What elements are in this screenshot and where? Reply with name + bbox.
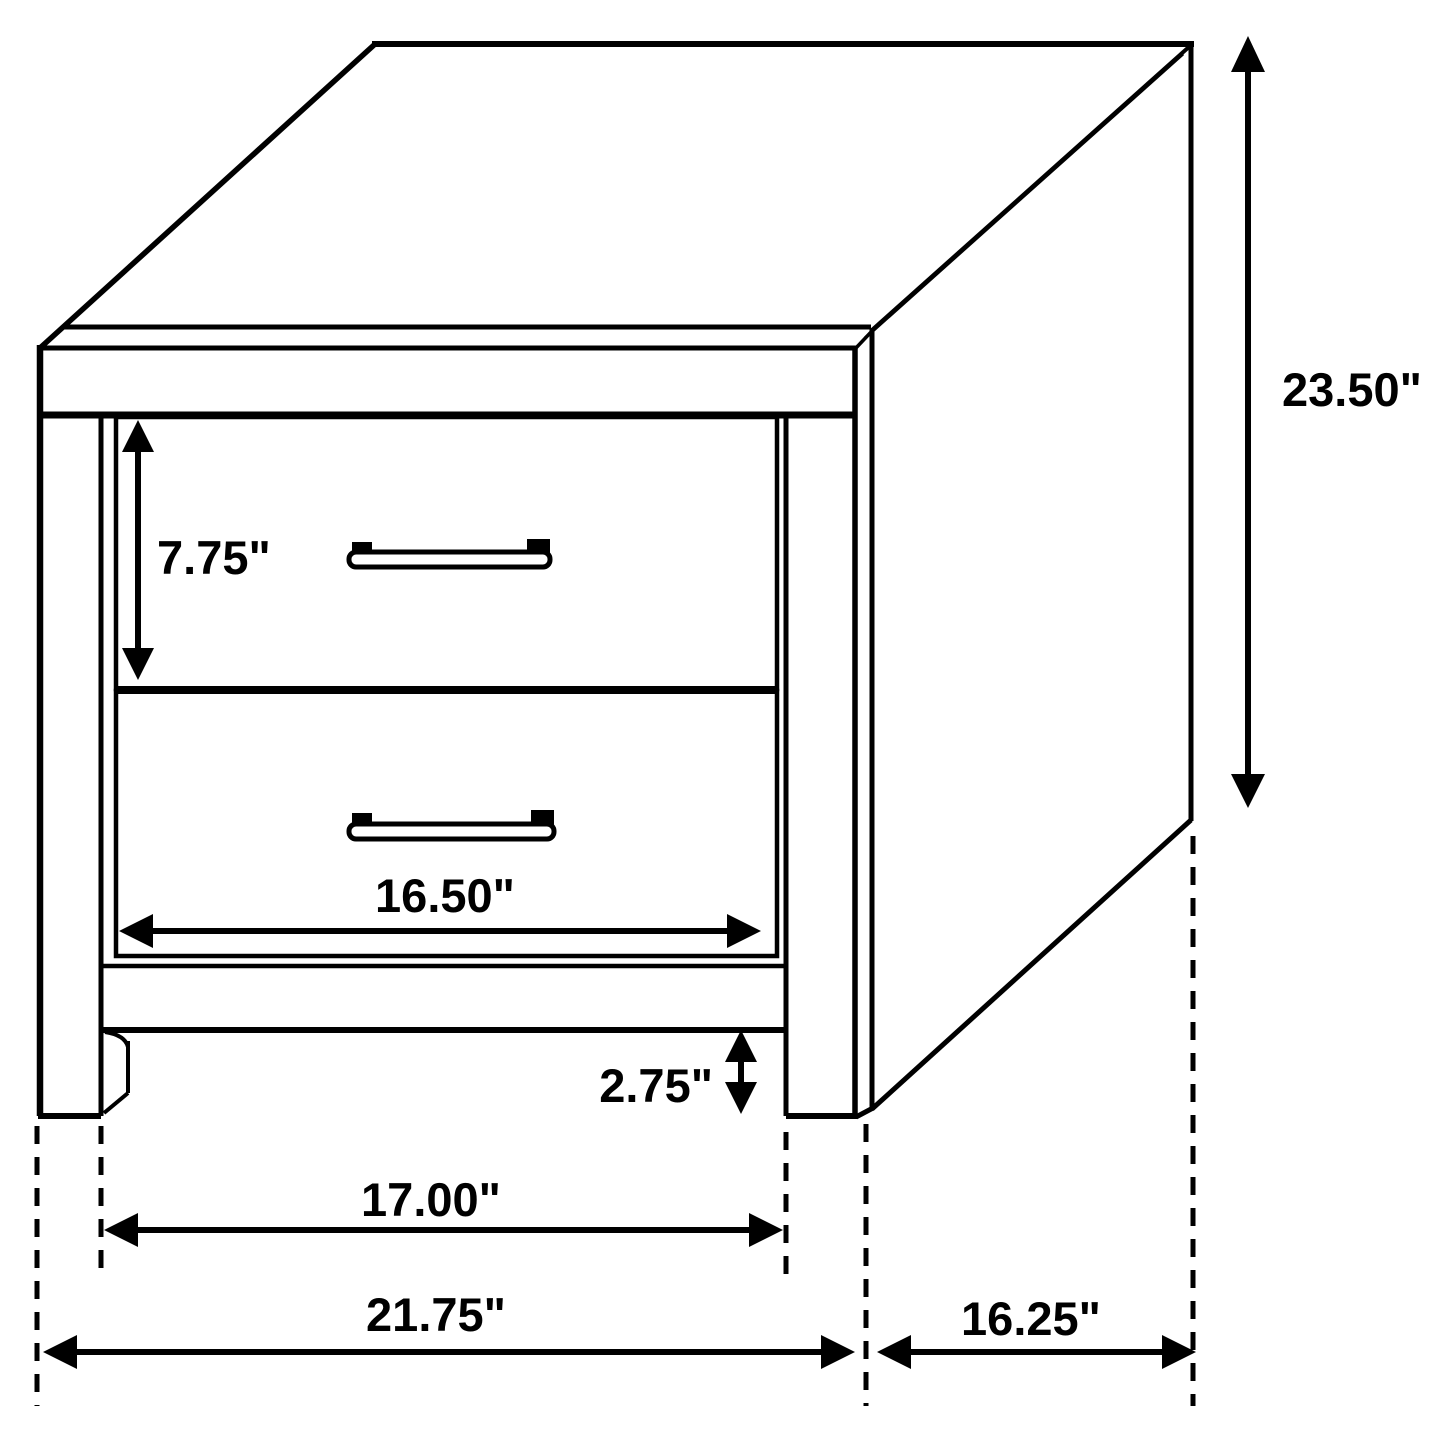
- handle-bar: [349, 824, 554, 839]
- dim-label-overall-height: 23.50": [1282, 363, 1422, 416]
- dim-label-drawer-width: 16.50": [375, 869, 515, 922]
- dim-label-inner-leg-width: 17.00": [361, 1173, 501, 1226]
- dim-label-overall-depth: 16.25": [961, 1292, 1101, 1345]
- handle-bar: [349, 552, 550, 567]
- dim-label-drawer-height: 7.75": [157, 531, 271, 584]
- nightstand-dimension-diagram: 7.75" 23.50" 16.50" 2.75" 17.00" 21.75": [0, 0, 1445, 1445]
- dim-label-foot-clearance: 2.75": [599, 1059, 713, 1112]
- dim-label-overall-width: 21.75": [366, 1288, 506, 1341]
- diagram-canvas: 7.75" 23.50" 16.50" 2.75" 17.00" 21.75": [0, 0, 1445, 1445]
